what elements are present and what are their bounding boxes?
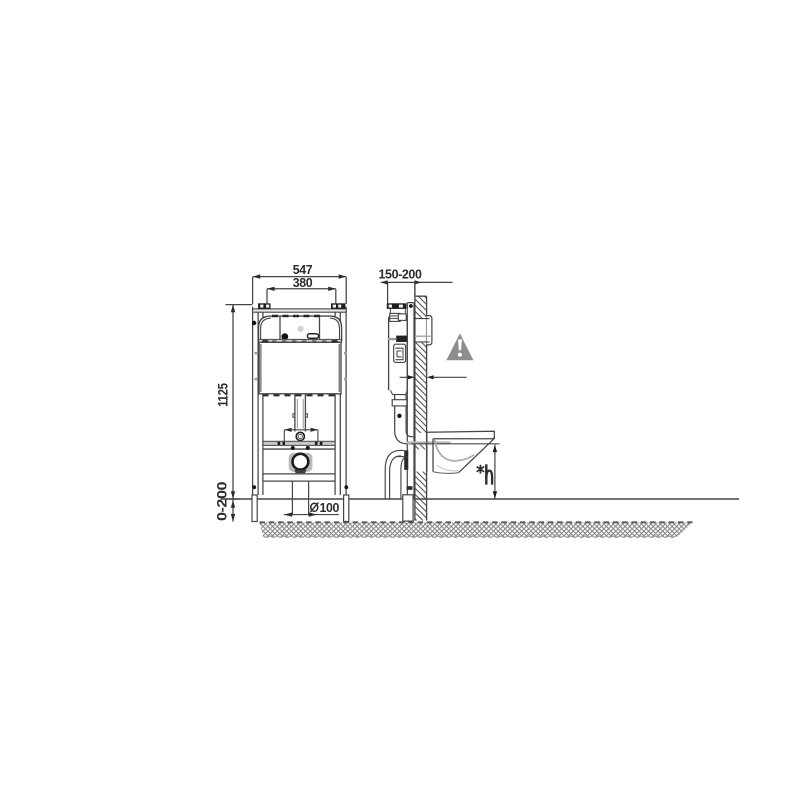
svg-text:380: 380 xyxy=(293,275,313,290)
svg-text:1125: 1125 xyxy=(215,383,231,407)
svg-text:150-200: 150-200 xyxy=(379,266,422,281)
svg-text:100: 100 xyxy=(320,500,340,515)
svg-text:0-200: 0-200 xyxy=(214,481,230,521)
